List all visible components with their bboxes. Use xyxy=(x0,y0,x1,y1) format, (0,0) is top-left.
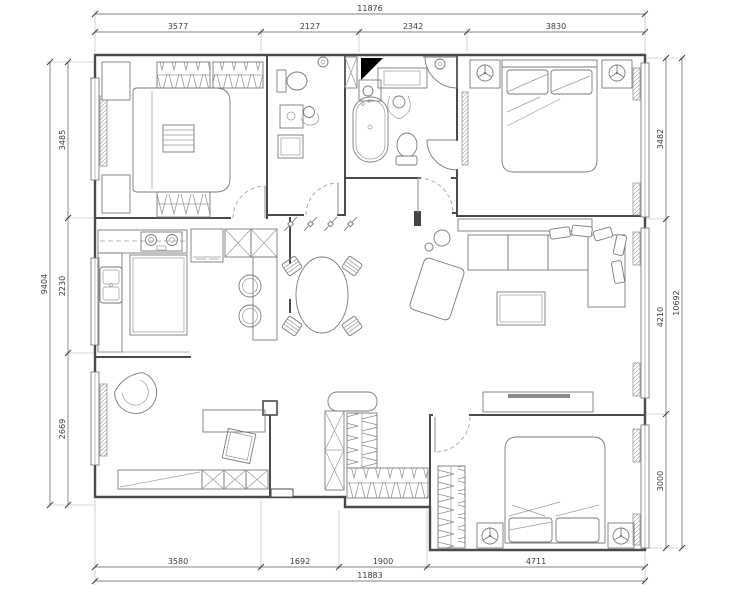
shaft-solid xyxy=(361,58,383,80)
door-arc xyxy=(427,140,457,170)
dining-chair xyxy=(341,256,362,277)
living-room xyxy=(409,225,627,412)
dim-bottom-seg3: 1900 xyxy=(373,557,393,566)
dim-bottom-seg1: 3580 xyxy=(168,557,188,566)
decor xyxy=(425,243,433,251)
kitchen xyxy=(98,229,277,352)
headboard xyxy=(502,60,597,67)
rug xyxy=(409,257,466,321)
bench xyxy=(328,392,377,411)
dim-right-seg1: 3482 xyxy=(656,129,665,149)
door-arc xyxy=(306,183,338,215)
cabinet-x xyxy=(325,411,344,490)
glass-partition xyxy=(284,217,357,231)
sofa-seat xyxy=(468,235,508,270)
shower-tray xyxy=(278,135,303,158)
sofa-cushion xyxy=(593,227,613,242)
toilet-bowl xyxy=(397,133,417,157)
dimension-left: 9404 3485 2230 2669 xyxy=(40,59,95,508)
figure-head xyxy=(393,96,405,108)
dining-area xyxy=(281,217,362,336)
decor xyxy=(434,230,450,246)
cabinet xyxy=(102,62,130,100)
stove xyxy=(141,232,182,251)
wardrobe xyxy=(157,192,210,217)
wardrobe xyxy=(438,466,465,548)
dim-top-seg1: 3577 xyxy=(168,22,188,31)
dim-top-seg2: 2127 xyxy=(300,22,320,31)
desk xyxy=(203,410,265,432)
bed-double xyxy=(505,437,605,543)
master-bedroom xyxy=(470,60,632,172)
wall-pier xyxy=(271,489,293,497)
sofa-seat xyxy=(508,235,548,270)
bar-stool xyxy=(239,305,261,327)
dim-left-overall: 9404 xyxy=(40,274,49,294)
dim-bottom-seg2: 1692 xyxy=(290,557,310,566)
dim-right-seg3: 3000 xyxy=(656,471,665,491)
lamp-icon xyxy=(482,528,498,544)
figure-arms xyxy=(301,113,319,125)
radiator xyxy=(462,92,468,165)
dimension-right: 3482 4210 3000 10692 xyxy=(645,55,686,551)
basin xyxy=(384,71,420,85)
washbasin xyxy=(280,105,303,128)
tv xyxy=(508,394,570,398)
dim-top-overall: 11876 xyxy=(357,4,382,13)
radiator xyxy=(633,429,640,462)
pillow xyxy=(507,70,548,94)
sofa-cushion xyxy=(611,260,625,283)
burner xyxy=(167,235,178,246)
door-arc xyxy=(233,186,265,218)
dining-chair xyxy=(281,316,302,337)
pillow xyxy=(551,70,592,94)
drain xyxy=(368,125,372,129)
bedroom-bottom-right xyxy=(435,417,634,548)
dim-right-seg2: 4210 xyxy=(656,307,665,327)
sofa-cushion xyxy=(572,225,593,237)
pillow xyxy=(556,518,599,542)
ceiling-lamp xyxy=(435,59,445,69)
radiator xyxy=(100,96,107,166)
floor-plan-page: 11876 3577 2127 2342 3830 3580 1692 1900… xyxy=(0,0,740,600)
dining-chair xyxy=(341,316,362,337)
bar-counter xyxy=(253,257,277,340)
sofa-seat xyxy=(548,235,588,270)
pillow xyxy=(509,518,552,542)
sofa-cushion xyxy=(549,227,570,240)
dim-bottom-overall: 11883 xyxy=(357,571,382,580)
study xyxy=(109,367,268,489)
entrance-door-arc xyxy=(418,178,453,213)
door-arc xyxy=(435,417,470,452)
lamp-icon xyxy=(609,65,625,81)
dim-left-seg1: 3485 xyxy=(58,130,67,150)
hallway xyxy=(325,392,428,498)
coffee-table xyxy=(497,292,545,325)
dimension-top: 11876 3577 2127 2342 3830 xyxy=(92,4,648,52)
dim-top-seg4: 3830 xyxy=(546,22,566,31)
dim-left-seg3: 2669 xyxy=(58,419,67,439)
entrance-pier xyxy=(414,211,421,226)
dining-chair xyxy=(281,256,302,277)
lamp-icon xyxy=(477,65,493,81)
dimension-bottom: 3580 1692 1900 4711 11883 xyxy=(92,500,648,585)
kitchen-island xyxy=(130,255,187,335)
ceiling-lamp xyxy=(318,57,328,67)
cabinet xyxy=(102,175,130,213)
burner xyxy=(146,235,157,246)
dining-table xyxy=(296,257,348,333)
radiator xyxy=(633,363,640,396)
figure-head xyxy=(304,107,315,118)
bar-stool xyxy=(239,275,261,297)
bed-double xyxy=(502,67,597,172)
toilet-tank xyxy=(396,156,417,165)
dim-right-overall: 10692 xyxy=(672,290,681,315)
radiator xyxy=(633,232,640,265)
entry-hall xyxy=(418,178,592,251)
dim-left-seg2: 2230 xyxy=(58,276,67,296)
radiator xyxy=(633,68,640,100)
dim-bottom-seg4: 4711 xyxy=(526,557,546,566)
bedroom-top-left xyxy=(102,62,265,218)
radiator xyxy=(633,183,640,215)
lamp-icon xyxy=(613,528,629,544)
armchair xyxy=(109,367,165,422)
toilet-bowl xyxy=(287,72,307,90)
floor-plan-drawing: 11876 3577 2127 2342 3830 3580 1692 1900… xyxy=(0,0,740,600)
radiator xyxy=(100,384,107,456)
toilet-tank xyxy=(277,70,286,92)
dim-top-seg3: 2342 xyxy=(403,22,423,31)
bathroom-2 xyxy=(353,57,457,170)
